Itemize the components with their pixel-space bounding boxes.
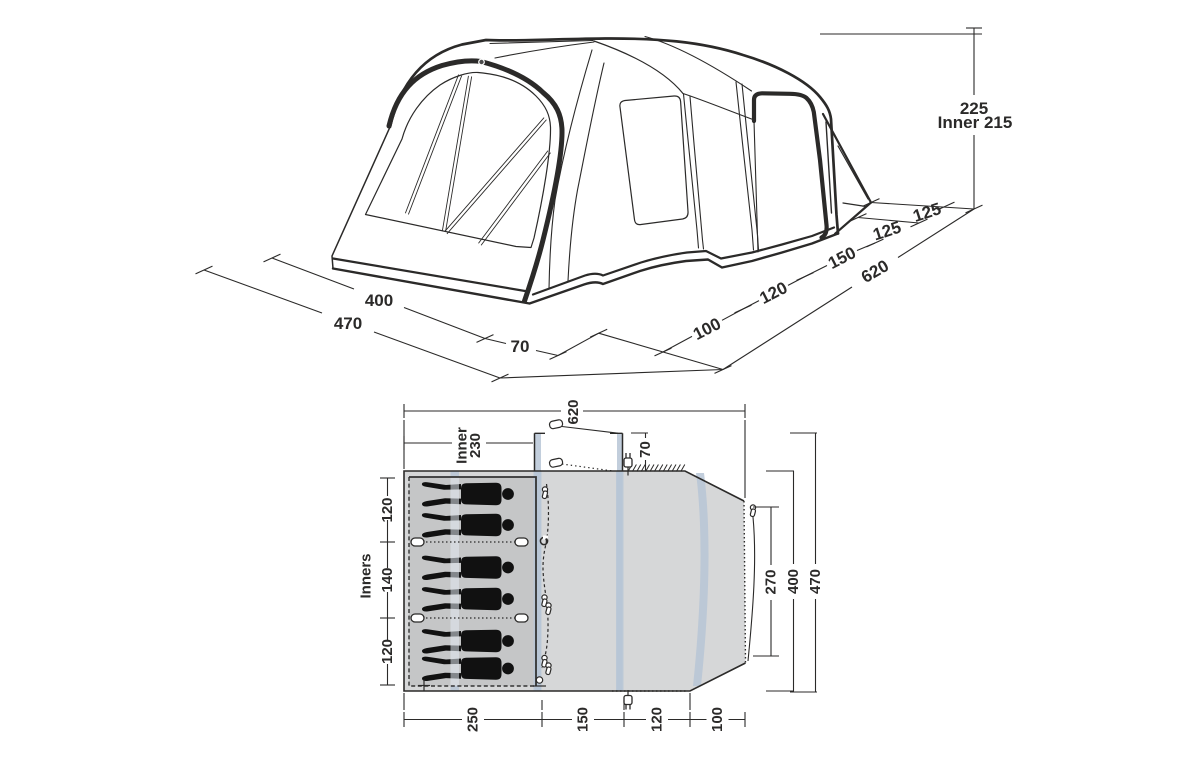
svg-text:120: 120 xyxy=(379,497,396,522)
svg-text:120: 120 xyxy=(379,639,396,664)
svg-text:400: 400 xyxy=(365,291,393,310)
svg-text:270: 270 xyxy=(763,569,780,594)
svg-text:70: 70 xyxy=(511,337,530,356)
svg-text:470: 470 xyxy=(807,569,824,594)
svg-text:140: 140 xyxy=(379,567,396,592)
svg-text:Inner 215: Inner 215 xyxy=(938,113,1013,132)
svg-text:125: 125 xyxy=(871,218,904,245)
svg-text:470: 470 xyxy=(334,314,362,333)
svg-text:620: 620 xyxy=(858,256,892,287)
svg-text:250: 250 xyxy=(465,707,482,732)
svg-text:100: 100 xyxy=(709,707,726,732)
svg-text:120: 120 xyxy=(757,278,791,308)
svg-text:620: 620 xyxy=(565,399,582,424)
svg-text:100: 100 xyxy=(690,314,724,344)
svg-text:70: 70 xyxy=(637,441,654,458)
svg-text:400: 400 xyxy=(785,569,802,594)
svg-text:Inners: Inners xyxy=(358,553,375,598)
svg-text:150: 150 xyxy=(825,243,859,273)
svg-text:120: 120 xyxy=(649,707,666,732)
svg-text:125: 125 xyxy=(911,199,944,226)
svg-text:150: 150 xyxy=(575,707,592,732)
svg-text:230: 230 xyxy=(467,433,484,458)
